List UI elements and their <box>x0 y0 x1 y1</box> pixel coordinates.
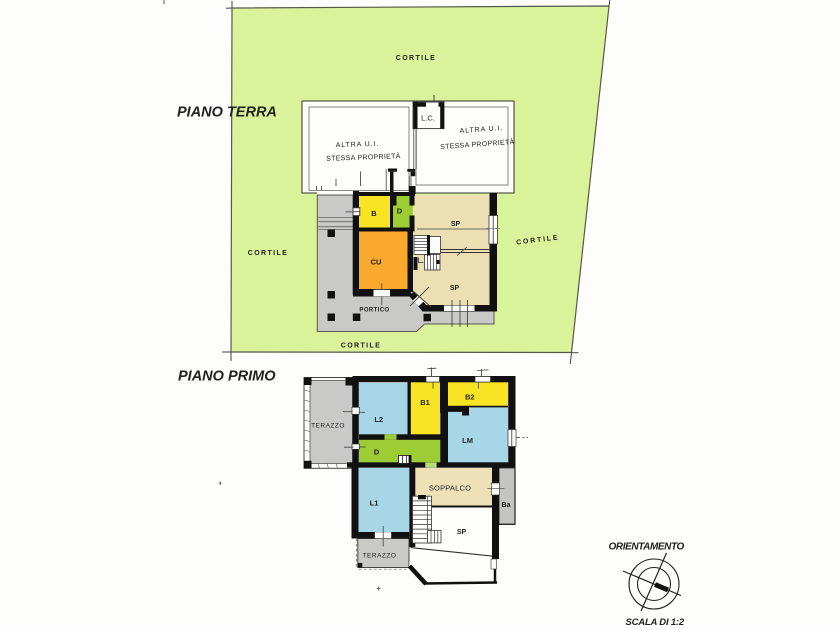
svg-text:ORIENTAMENTO: ORIENTAMENTO <box>609 542 685 553</box>
svg-text:TERAZZO: TERAZZO <box>311 423 345 430</box>
svg-text:PORTICO: PORTICO <box>359 308 389 314</box>
svg-text:PIANO TERRA: PIANO TERRA <box>177 105 277 121</box>
svg-text:SP: SP <box>457 529 467 536</box>
svg-text:B: B <box>371 209 377 218</box>
svg-text:SP: SP <box>451 221 461 228</box>
svg-text:D: D <box>397 207 403 216</box>
svg-text:PIANO PRIMO: PIANO PRIMO <box>178 369 276 385</box>
svg-text:SCALA DI 1:2: SCALA DI 1:2 <box>626 617 685 628</box>
svg-text:LM: LM <box>462 436 473 445</box>
svg-text:L2: L2 <box>374 415 383 424</box>
svg-text:SP: SP <box>450 285 460 292</box>
svg-text:SOPPALCO: SOPPALCO <box>429 484 471 493</box>
svg-text:D: D <box>374 448 380 457</box>
svg-text:CU: CU <box>371 258 382 267</box>
svg-text:Ba: Ba <box>502 502 511 509</box>
svg-text:CORTILE: CORTILE <box>248 250 289 257</box>
svg-text:L.C.: L.C. <box>421 114 435 123</box>
svg-text:B1: B1 <box>420 398 430 407</box>
svg-text:B2: B2 <box>465 393 475 402</box>
svg-text:L1: L1 <box>370 499 379 508</box>
svg-text:CORTILE: CORTILE <box>341 343 382 350</box>
svg-text:TERAZZO: TERAZZO <box>363 553 397 560</box>
svg-text:CORTILE: CORTILE <box>396 55 437 62</box>
